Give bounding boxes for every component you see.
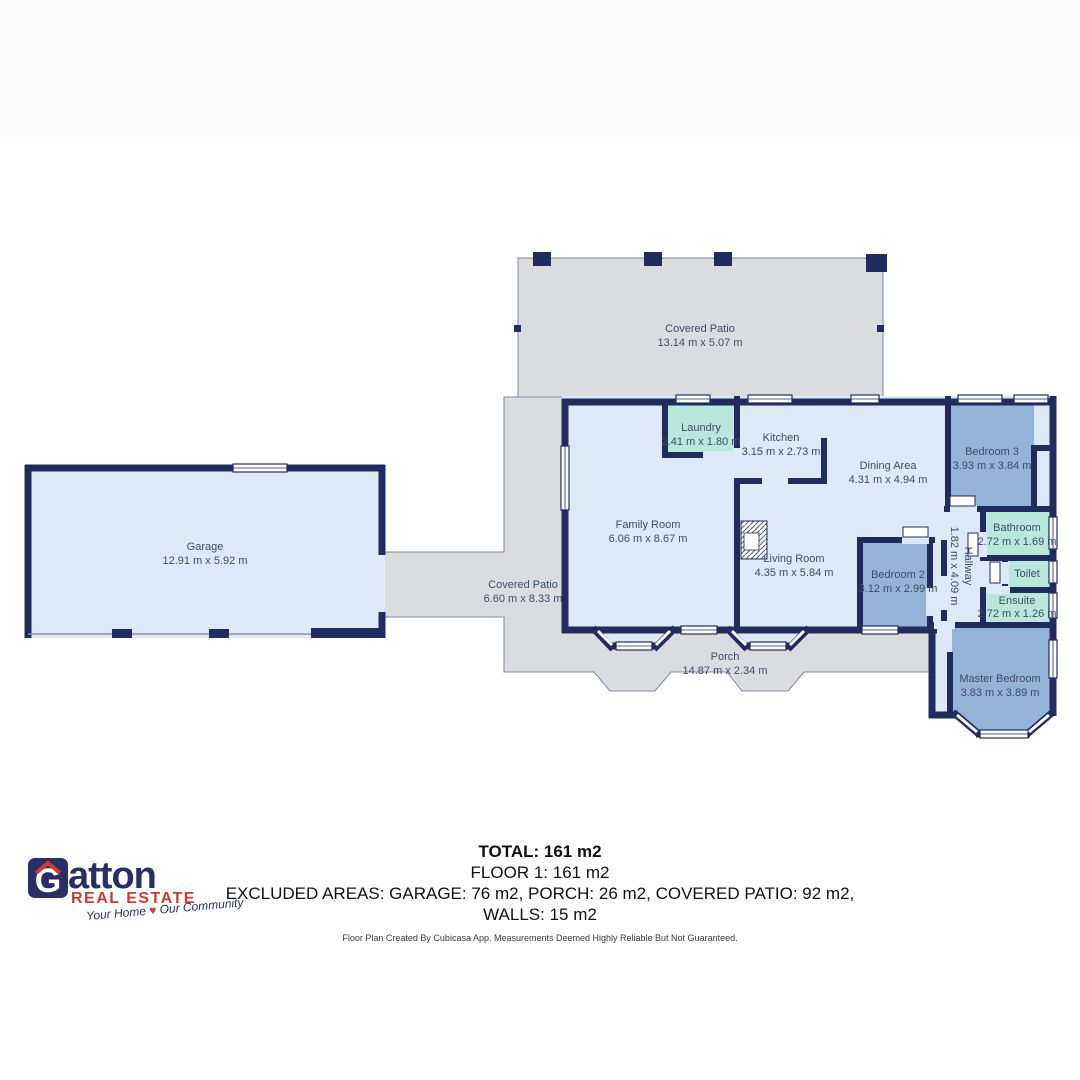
label-laundry-dims: 2.41 m x 1.80 m bbox=[662, 436, 741, 448]
door-leaf bbox=[950, 496, 975, 506]
label-porch-dims: 14.87 m x 2.34 m bbox=[683, 665, 768, 677]
label-master-bedroom-dims: 3.83 m x 3.89 m bbox=[961, 687, 1040, 699]
label-living-room-dims: 4.35 m x 5.84 m bbox=[755, 567, 834, 579]
label-dining-area-name: Dining Area bbox=[860, 460, 918, 472]
label-bathroom-dims: 2.72 m x 1.69 m bbox=[978, 536, 1057, 548]
label-living-room-name: Living Room bbox=[763, 553, 824, 565]
label-kitchen-dims: 3.15 m x 2.73 m bbox=[742, 446, 821, 458]
door-leaf bbox=[990, 562, 1000, 583]
wall-stub bbox=[209, 629, 229, 638]
label-hallway-dims: 1.82 m x 4.09 m bbox=[948, 527, 960, 606]
label-kitchen-name: Kitchen bbox=[763, 432, 800, 444]
label-bedroom-2-name: Bedroom 2 bbox=[871, 569, 925, 581]
pillar bbox=[514, 325, 521, 332]
logo-g-letter: G bbox=[35, 862, 61, 900]
heart-icon: ♥ bbox=[149, 903, 157, 918]
pillar bbox=[533, 252, 551, 266]
label-toilet-name: Toilet bbox=[1014, 568, 1040, 580]
door-opening bbox=[733, 448, 741, 478]
bathroom-floor bbox=[984, 511, 1051, 557]
agency-logo: G atton REAL ESTATE Your Home ♥ Our Comm… bbox=[26, 850, 256, 934]
label-garage-name: Garage bbox=[187, 541, 224, 553]
wall-stub bbox=[311, 628, 385, 638]
label-bedroom-3-dims: 3.93 m x 3.84 m bbox=[953, 460, 1032, 472]
door-opening bbox=[986, 586, 1010, 594]
label-covered-patio-left-dims: 6.60 m x 8.33 m bbox=[484, 593, 563, 605]
door-opening bbox=[934, 621, 955, 629]
wall-stub bbox=[112, 629, 132, 638]
door-leaf bbox=[903, 527, 928, 537]
label-bedroom-3-name: Bedroom 3 bbox=[965, 446, 1019, 458]
fireplace-opening bbox=[744, 533, 759, 550]
pillar bbox=[877, 325, 884, 332]
door-opening bbox=[762, 477, 788, 485]
label-garage-dims: 12.91 m x 5.92 m bbox=[163, 555, 248, 567]
label-bathroom-name: Bathroom bbox=[993, 522, 1041, 534]
label-bedroom-2-dims: 3.12 m x 2.99 m bbox=[859, 583, 938, 595]
pillar bbox=[644, 252, 662, 266]
label-covered-patio-top-name: Covered Patio bbox=[665, 323, 735, 335]
label-family-room-name: Family Room bbox=[616, 519, 681, 531]
label-ensuite-name: Ensuite bbox=[999, 595, 1036, 607]
agency-logo-art: G atton REAL ESTATE Your Home ♥ Our Comm… bbox=[26, 850, 256, 934]
label-hallway-name: Hallway bbox=[962, 547, 974, 586]
door-opening bbox=[703, 451, 734, 459]
pillar bbox=[714, 252, 732, 266]
label-covered-patio-left-name: Covered Patio bbox=[488, 579, 558, 591]
label-dining-area-dims: 4.31 m x 4.94 m bbox=[849, 474, 928, 486]
label-ensuite-dims: 2.72 m x 1.26 m bbox=[978, 608, 1057, 620]
pillar bbox=[866, 254, 887, 272]
door-opening bbox=[940, 576, 948, 610]
door-opening bbox=[1001, 562, 1009, 584]
label-covered-patio-top-dims: 13.14 m x 5.07 m bbox=[658, 337, 743, 349]
label-porch-name: Porch bbox=[711, 651, 740, 663]
label-master-bedroom-name: Master Bedroom bbox=[959, 673, 1040, 685]
label-family-room-dims: 6.06 m x 8.67 m bbox=[609, 533, 688, 545]
label-laundry-name: Laundry bbox=[681, 422, 721, 434]
